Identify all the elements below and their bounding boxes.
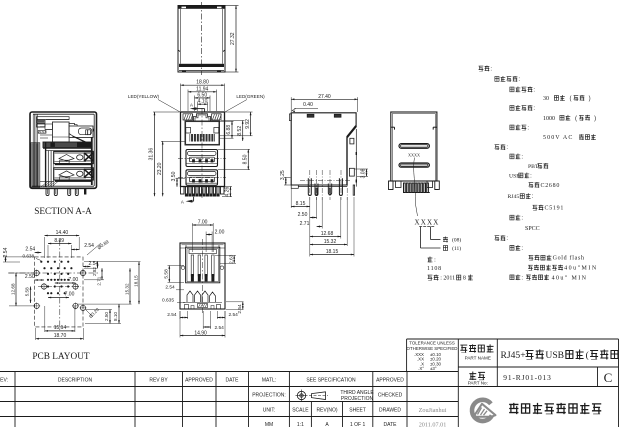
svg-text:30: 30 xyxy=(543,96,549,102)
svg-text:PROJECTION: PROJECTION xyxy=(341,396,374,402)
svg-text:TOLERANCE UNLESS: TOLERANCE UNLESS xyxy=(409,341,455,346)
svg-text:3.50: 3.50 xyxy=(171,171,177,181)
svg-text:2.63: 2.63 xyxy=(228,254,234,264)
svg-text:REV BY: REV BY xyxy=(149,377,168,383)
svg-text:(11): (11) xyxy=(452,245,461,252)
svg-text:SCALE: SCALE xyxy=(292,407,309,413)
svg-text:12.68: 12.68 xyxy=(10,283,15,295)
svg-text:15.32: 15.32 xyxy=(125,283,130,295)
svg-text:(: ( xyxy=(570,96,572,102)
svg-text:31.36: 31.36 xyxy=(149,148,155,161)
svg-text:SEE SPECIFICATION: SEE SPECIFICATION xyxy=(306,377,356,383)
svg-text:3.25: 3.25 xyxy=(280,170,286,180)
svg-text:APPROVED: APPROVED xyxy=(185,377,213,383)
svg-text:XXXX: XXXX xyxy=(414,219,439,227)
svg-text:1000: 1000 xyxy=(543,116,555,122)
svg-text:18.70: 18.70 xyxy=(54,333,67,339)
svg-text:2.54: 2.54 xyxy=(167,312,177,318)
svg-text:1108: 1108 xyxy=(427,266,442,272)
svg-text:14.40: 14.40 xyxy=(56,230,69,236)
svg-text:8.52: 8.52 xyxy=(237,126,243,136)
svg-text:0.40: 0.40 xyxy=(303,102,313,108)
svg-text:MM: MM xyxy=(265,422,273,427)
svg-text:PART No:: PART No: xyxy=(468,381,488,386)
svg-text:8: 8 xyxy=(463,276,466,282)
svg-text:1:1: 1:1 xyxy=(297,422,304,427)
svg-text:PBT: PBT xyxy=(528,164,539,170)
svg-text:1 OF 1: 1 OF 1 xyxy=(350,422,366,427)
svg-text:MATL:: MATL: xyxy=(262,377,276,383)
svg-text:4.10: 4.10 xyxy=(198,99,208,105)
svg-text:OTHERWISE SPECIFIED: OTHERWISE SPECIFIED xyxy=(407,346,458,351)
svg-text:2.50: 2.50 xyxy=(25,274,35,280)
svg-text:): ) xyxy=(589,96,591,102)
svg-text:0.638: 0.638 xyxy=(23,253,35,258)
svg-text:23.20: 23.20 xyxy=(157,162,163,175)
svg-text:PROJECTION:: PROJECTION: xyxy=(252,392,286,398)
svg-text:): ) xyxy=(594,116,596,122)
svg-text:12.68: 12.68 xyxy=(321,231,334,237)
svg-text:91-RJ01-013: 91-RJ01-013 xyxy=(503,373,552,382)
svg-text:14.90: 14.90 xyxy=(194,330,207,336)
svg-text:A: A xyxy=(190,102,193,107)
svg-text:0.635: 0.635 xyxy=(162,298,174,304)
svg-text:RJ45: RJ45 xyxy=(508,194,520,200)
svg-text:APPROVED: APPROVED xyxy=(376,377,404,383)
svg-text:8.50: 8.50 xyxy=(243,154,249,164)
svg-text:27.32: 27.32 xyxy=(230,32,236,45)
svg-text:DESCRIPTION: DESCRIPTION xyxy=(58,377,93,383)
svg-text:DATE: DATE xyxy=(384,422,398,427)
svg-text:SHEET: SHEET xyxy=(349,407,366,413)
svg-text:2.50: 2.50 xyxy=(298,212,308,218)
svg-text:6.88: 6.88 xyxy=(226,125,232,135)
svg-text:5.58: 5.58 xyxy=(164,269,170,279)
svg-text:7.00: 7.00 xyxy=(68,277,78,283)
svg-text:40u"MIN: 40u"MIN xyxy=(564,266,598,272)
svg-text:18.15: 18.15 xyxy=(326,249,339,255)
svg-text:USB: USB xyxy=(545,350,564,361)
svg-text:REV:: REV: xyxy=(0,377,8,383)
svg-text:PCB LAYOUT: PCB LAYOUT xyxy=(32,352,90,362)
svg-text:(: ( xyxy=(575,116,577,122)
svg-text:A: A xyxy=(181,199,184,204)
svg-text:2.54: 2.54 xyxy=(84,243,94,249)
svg-text:(08): (08) xyxy=(452,237,461,244)
svg-text:2.54: 2.54 xyxy=(25,247,35,253)
svg-text:±3°: ±3° xyxy=(430,366,437,371)
svg-text:PART NAME: PART NAME xyxy=(465,356,491,361)
svg-text:7.00: 7.00 xyxy=(65,292,75,298)
svg-text:(: ( xyxy=(586,350,589,361)
svg-text:8.89: 8.89 xyxy=(54,238,64,244)
svg-text:LED(GREEN): LED(GREEN) xyxy=(236,94,265,99)
svg-text:11.94: 11.94 xyxy=(196,86,208,92)
svg-text:2.54: 2.54 xyxy=(229,312,239,318)
svg-text:REV(NO): REV(NO) xyxy=(316,407,337,413)
svg-text:ZouJianhui: ZouJianhui xyxy=(419,407,447,414)
svg-text:7.00: 7.00 xyxy=(198,219,208,225)
svg-text:.X°: .X° xyxy=(418,366,424,371)
svg-text:15.14: 15.14 xyxy=(54,325,67,331)
svg-text:CHECKED: CHECKED xyxy=(378,392,403,398)
svg-text:XXXX: XXXX xyxy=(408,153,420,158)
svg-text:C2680: C2680 xyxy=(541,183,561,189)
svg-text:2.71: 2.71 xyxy=(97,276,102,285)
svg-text:9.92: 9.92 xyxy=(245,119,251,129)
svg-text:2.71: 2.71 xyxy=(300,221,310,227)
svg-text:C: C xyxy=(604,370,613,385)
svg-text:500V AC: 500V AC xyxy=(543,135,573,141)
svg-text:2.54: 2.54 xyxy=(3,247,9,257)
svg-text:2.50: 2.50 xyxy=(104,312,109,321)
svg-text:LED(YELLOW): LED(YELLOW) xyxy=(128,94,160,99)
svg-text:DRAWED: DRAWED xyxy=(379,407,401,413)
svg-text:2.54: 2.54 xyxy=(215,325,225,331)
svg-text:27.40: 27.40 xyxy=(318,94,331,100)
svg-text:8.10: 8.10 xyxy=(113,312,118,321)
svg-text:: 2011: : 2011 xyxy=(440,276,455,282)
svg-text:6.50: 6.50 xyxy=(197,92,207,98)
svg-text:DATE: DATE xyxy=(226,377,240,383)
svg-text:18.15: 18.15 xyxy=(134,275,139,287)
svg-text:2.00: 2.00 xyxy=(215,229,225,235)
svg-text:40u" MIN: 40u" MIN xyxy=(552,275,588,281)
svg-text:15.32: 15.32 xyxy=(324,239,337,245)
svg-text:UNIT:: UNIT: xyxy=(263,407,276,413)
svg-text:2.54: 2.54 xyxy=(165,284,175,290)
svg-text:C5191: C5191 xyxy=(545,206,565,212)
svg-text:2011.07.01: 2011.07.01 xyxy=(419,421,447,427)
svg-text:3.08: 3.08 xyxy=(361,168,367,178)
svg-text:SPCC: SPCC xyxy=(525,226,540,232)
svg-text:RJ45+: RJ45+ xyxy=(501,350,526,361)
svg-text:Gold flash: Gold flash xyxy=(553,255,585,262)
svg-text:SECTION A-A: SECTION A-A xyxy=(34,207,92,217)
svg-text:4.26: 4.26 xyxy=(225,187,231,197)
svg-text:18.80: 18.80 xyxy=(196,80,209,86)
svg-text:2.54: 2.54 xyxy=(237,304,243,314)
svg-text:5.58: 5.58 xyxy=(25,287,30,296)
svg-text:8.15: 8.15 xyxy=(296,201,306,207)
